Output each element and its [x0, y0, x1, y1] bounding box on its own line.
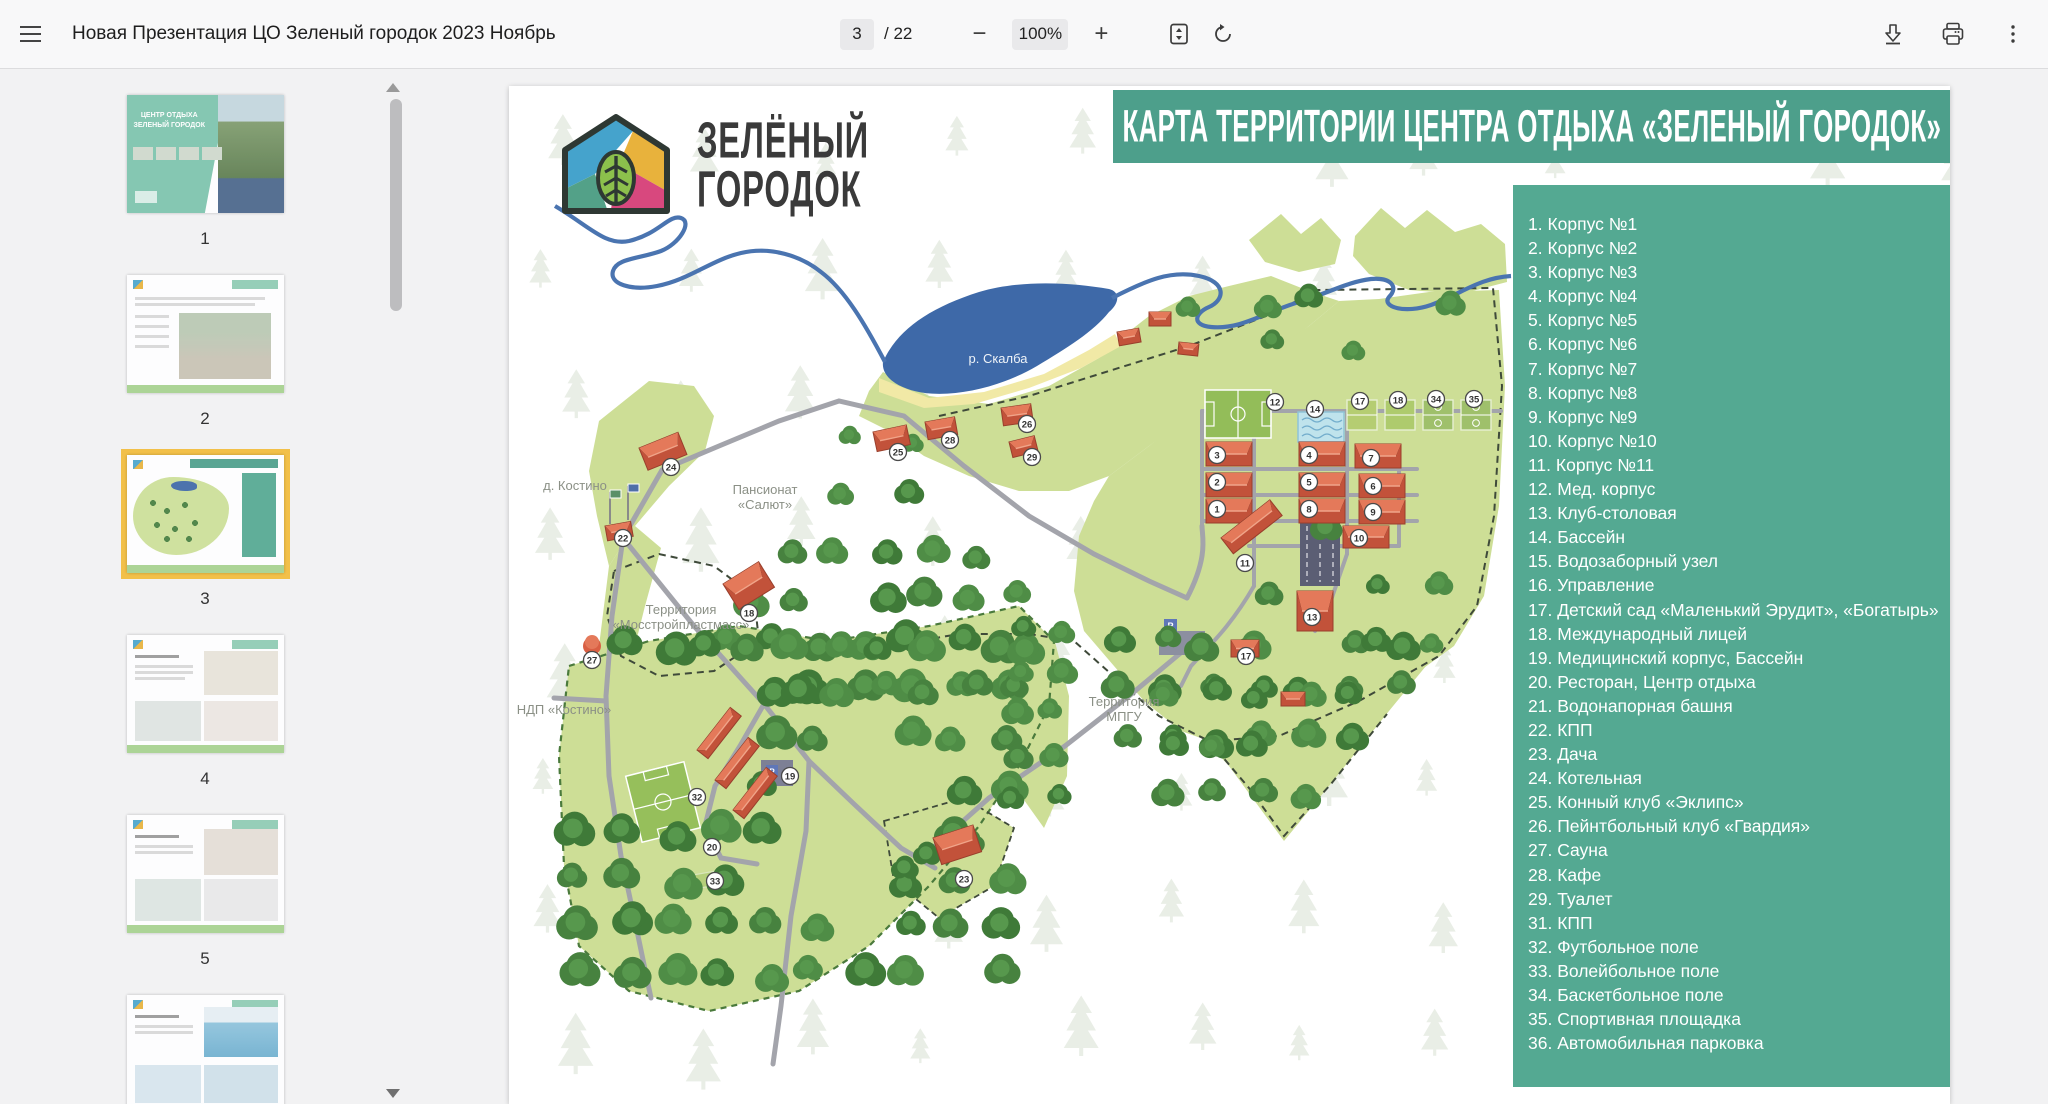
svg-text:27: 27 [587, 655, 598, 666]
svg-text:24: 24 [666, 462, 677, 473]
svg-text:26: 26 [1022, 419, 1033, 430]
map-badge-19: 19 [782, 768, 799, 785]
legend-item: 28. Кафе [1528, 863, 1937, 887]
legend-item: 1. Корпус №1 [1528, 212, 1937, 236]
legend-item: 9. Корпус №9 [1528, 405, 1937, 429]
legend-item: 35. Спортивная площадка [1528, 1007, 1937, 1031]
rotate-icon [1211, 22, 1235, 46]
thumbnail-page-number: 1 [127, 229, 284, 249]
map-badge-24: 24 [663, 459, 680, 476]
map-badge-4: 4 [1301, 447, 1318, 464]
svg-text:7: 7 [1368, 453, 1373, 464]
logo-house-icon [557, 112, 675, 218]
legend-item: 29. Туалет [1528, 887, 1937, 911]
rotate-button[interactable] [1206, 17, 1240, 51]
map-badge-13: 13 [1304, 609, 1321, 626]
thumbnail-page-5[interactable] [127, 815, 284, 933]
svg-text:2: 2 [1214, 477, 1219, 488]
map-badge-26: 26 [1019, 416, 1036, 433]
map-badge-22: 22 [615, 530, 632, 547]
thumbnail-page-2[interactable] [127, 275, 284, 393]
legend-item: 15. Водозаборный узел [1528, 549, 1937, 573]
logo: ЗЕЛЁНЫЙ ГОРОДОК [557, 112, 918, 218]
kebab-menu-icon [2001, 22, 2025, 46]
map-badge-10: 10 [1351, 530, 1368, 547]
legend-item: 36. Автомобильная парковка [1528, 1031, 1937, 1055]
sidebar-scrollbar[interactable] [390, 99, 402, 311]
legend-item: 12. Мед. корпус [1528, 477, 1937, 501]
svg-text:14: 14 [1310, 404, 1321, 415]
slide-page: P P [509, 86, 1950, 1104]
slide-title-banner: КАРТА ТЕРРИТОРИИ ЦЕНТРА ОТДЫХА «ЗЕЛЕНЫЙ … [1113, 90, 1950, 163]
svg-text:22: 22 [618, 533, 629, 544]
thumbnail-page-3[interactable] [127, 455, 284, 573]
slide-title: КАРТА ТЕРРИТОРИИ ЦЕНТРА ОТДЫХА «ЗЕЛЕНЫЙ … [1122, 101, 1941, 152]
fit-to-page-button[interactable] [1162, 17, 1196, 51]
legend-item: 19. Медицинский корпус, Бассейн [1528, 646, 1937, 670]
thumbnail-sidebar: ЦЕНТР ОТДЫХАЗЕЛЕНЫЙ ГОРОДОК 1 2 3 [0, 69, 410, 1104]
document-area: P P [410, 69, 2048, 1104]
legend-item: 14. Бассейн [1528, 525, 1937, 549]
legend-item: 10. Корпус №10 [1528, 429, 1937, 453]
zoom-out-button[interactable]: − [962, 17, 996, 51]
map-badge-9: 9 [1365, 504, 1382, 521]
sidebar-scroll-up-icon[interactable] [386, 83, 400, 92]
download-button[interactable] [1876, 17, 1910, 51]
svg-text:11: 11 [1240, 558, 1251, 569]
legend-item: 25. Конный клуб «Эклипс» [1528, 790, 1937, 814]
map-legend-panel: 1. Корпус №12. Корпус №23. Корпус №34. К… [1513, 185, 1950, 1087]
svg-text:25: 25 [893, 447, 904, 458]
map-badge-34: 34 [1428, 391, 1445, 408]
logo-wordmark: ЗЕЛЁНЫЙ ГОРОДОК [697, 116, 869, 213]
map-badge-32: 32 [689, 789, 706, 806]
legend-item: 16. Управление [1528, 573, 1937, 597]
map-badge-14: 14 [1307, 401, 1324, 418]
legend-item: 22. КПП [1528, 718, 1937, 742]
svg-text:17: 17 [1355, 396, 1366, 407]
map-badge-6: 6 [1365, 478, 1382, 495]
thumbnail-page-4[interactable] [127, 635, 284, 753]
thumbnail-page-number: 2 [127, 409, 284, 429]
map-badge-29: 29 [1024, 449, 1041, 466]
svg-text:28: 28 [945, 435, 956, 446]
svg-text:9: 9 [1370, 507, 1375, 518]
svg-text:10: 10 [1354, 533, 1365, 544]
map-badge-7: 7 [1363, 450, 1380, 467]
map-badge-8: 8 [1301, 501, 1318, 518]
map-area-label: д. Костино [543, 478, 607, 493]
sidebar-scroll-down-icon[interactable] [386, 1089, 400, 1098]
map-area-label: р. Скалба [968, 351, 1028, 366]
map-badge-17: 17 [1238, 648, 1255, 665]
legend-item: 6. Корпус №6 [1528, 332, 1937, 356]
legend-item: 4. Корпус №4 [1528, 284, 1937, 308]
svg-text:35: 35 [1469, 394, 1480, 405]
legend-item: 7. Корпус №7 [1528, 357, 1937, 381]
more-options-button[interactable] [1996, 17, 2030, 51]
svg-text:23: 23 [959, 874, 970, 885]
legend-item: 27. Сауна [1528, 838, 1937, 862]
print-icon [1940, 21, 1966, 47]
map-badge-1: 1 [1209, 501, 1226, 518]
svg-text:20: 20 [707, 842, 718, 853]
legend-item: 20. Ресторан, Центр отдыха [1528, 670, 1937, 694]
legend-item: 26. Пейнтбольный клуб «Гвардия» [1528, 814, 1937, 838]
svg-text:6: 6 [1370, 481, 1375, 492]
map-badge-27: 27 [584, 652, 601, 669]
fit-to-page-icon [1167, 22, 1191, 46]
svg-text:1: 1 [1214, 504, 1220, 515]
thumbnail-page-number: 4 [127, 769, 284, 789]
map-badge-28: 28 [942, 432, 959, 449]
svg-text:17: 17 [1241, 651, 1252, 662]
svg-text:4: 4 [1306, 450, 1312, 461]
legend-item: 33. Волейбольное поле [1528, 959, 1937, 983]
legend-item: 32. Футбольное поле [1528, 935, 1937, 959]
legend-item: 11. Корпус №11 [1528, 453, 1937, 477]
map-area-label: НДП «Костино» [517, 702, 612, 717]
legend-item: 17. Детский сад «Маленький Эрудит», «Бог… [1528, 598, 1937, 622]
map-badge-18: 18 [1390, 392, 1407, 409]
print-button[interactable] [1936, 17, 1970, 51]
svg-text:32: 32 [692, 792, 703, 803]
svg-text:34: 34 [1431, 394, 1442, 405]
legend-item: 31. КПП [1528, 911, 1937, 935]
pdf-toolbar: Новая Презентация ЦО Зеленый городок 202… [0, 0, 2048, 69]
map-badge-20: 20 [704, 839, 721, 856]
legend-item: 13. Клуб-столовая [1528, 501, 1937, 525]
svg-text:13: 13 [1307, 612, 1318, 623]
thumbnail-page-number: 5 [127, 949, 284, 969]
svg-text:29: 29 [1027, 452, 1038, 463]
map-badge-12: 12 [1267, 394, 1284, 411]
page-number-input[interactable]: 3 [840, 19, 874, 50]
legend-item: 18. Международный лицей [1528, 622, 1937, 646]
map-badge-3: 3 [1209, 447, 1226, 464]
svg-text:8: 8 [1306, 504, 1311, 515]
thumbnail-page-6[interactable] [127, 995, 284, 1104]
svg-text:3: 3 [1214, 450, 1219, 461]
svg-text:33: 33 [710, 876, 721, 887]
map-badge-25: 25 [890, 444, 907, 461]
svg-text:19: 19 [785, 771, 796, 782]
legend-item: 23. Дача [1528, 742, 1937, 766]
zoom-in-button[interactable]: + [1084, 17, 1118, 51]
legend-item: 3. Корпус №3 [1528, 260, 1937, 284]
map-area-label: Пансионат«Салют» [733, 482, 798, 512]
svg-text:18: 18 [1393, 395, 1404, 406]
map-badge-23: 23 [956, 871, 973, 888]
legend-item: 5. Корпус №5 [1528, 308, 1937, 332]
map-badge-33: 33 [707, 873, 724, 890]
thumbnail-page-1[interactable]: ЦЕНТР ОТДЫХАЗЕЛЕНЫЙ ГОРОДОК [127, 95, 284, 213]
map-badge-2: 2 [1209, 474, 1226, 491]
map-badge-5: 5 [1301, 474, 1318, 491]
zoom-level-value[interactable]: 100% [1012, 19, 1068, 50]
svg-text:12: 12 [1270, 397, 1281, 408]
legend-item: 24. Котельная [1528, 766, 1937, 790]
legend-item: 34. Баскетбольное поле [1528, 983, 1937, 1007]
legend-item: 2. Корпус №2 [1528, 236, 1937, 260]
page-total-label: / 22 [884, 24, 912, 44]
map-badge-17: 17 [1352, 393, 1369, 410]
document-title: Новая Презентация ЦО Зеленый городок 202… [72, 23, 556, 45]
thumbnail-page-number: 3 [127, 589, 284, 609]
legend-item: 8. Корпус №8 [1528, 381, 1937, 405]
svg-text:5: 5 [1306, 477, 1312, 488]
menu-icon[interactable] [20, 20, 48, 48]
map-badge-11: 11 [1237, 555, 1254, 572]
map-badge-35: 35 [1466, 391, 1483, 408]
download-icon [1881, 22, 1905, 46]
legend-item: 21. Водонапорная башня [1528, 694, 1937, 718]
